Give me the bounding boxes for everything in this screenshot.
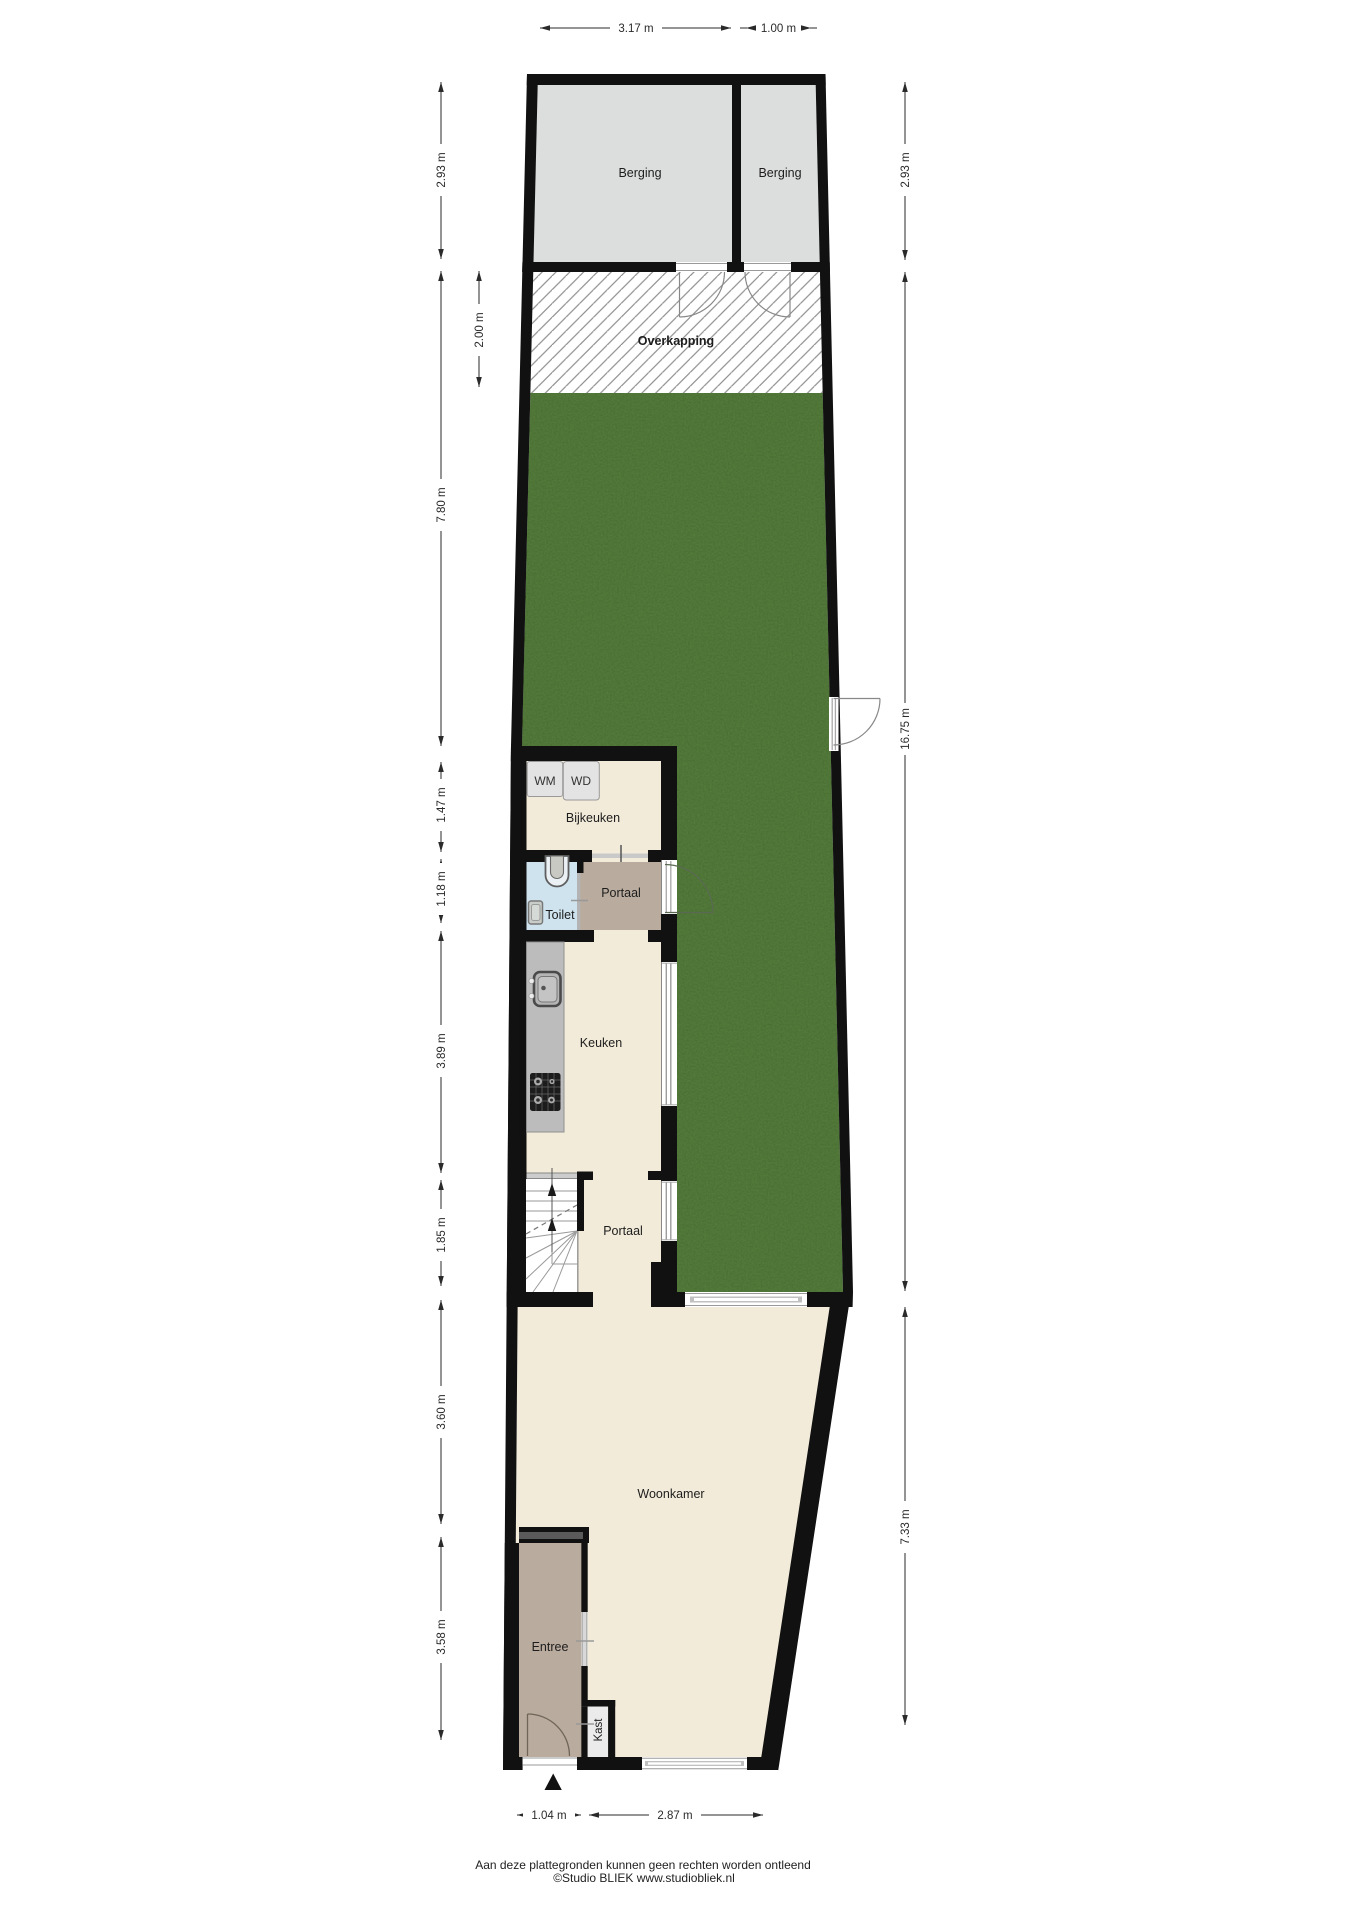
svg-text:Keuken: Keuken bbox=[580, 1036, 622, 1050]
svg-text:1.85 m: 1.85 m bbox=[436, 1217, 448, 1252]
svg-text:2.93 m: 2.93 m bbox=[900, 152, 912, 187]
svg-text:7.80 m: 7.80 m bbox=[436, 487, 448, 522]
svg-text:7.33 m: 7.33 m bbox=[900, 1509, 912, 1544]
svg-text:3.89 m: 3.89 m bbox=[436, 1033, 448, 1068]
svg-text:Overkapping: Overkapping bbox=[638, 334, 714, 348]
svg-text:1.04 m: 1.04 m bbox=[531, 1810, 566, 1822]
svg-text:Portaal: Portaal bbox=[603, 1224, 643, 1238]
svg-text:2.00 m: 2.00 m bbox=[474, 312, 486, 347]
svg-text:©Studio BLIEK www.studiobliek.: ©Studio BLIEK www.studiobliek.nl bbox=[553, 1871, 735, 1885]
svg-text:Berging: Berging bbox=[618, 166, 661, 180]
svg-text:1.00 m: 1.00 m bbox=[761, 23, 796, 35]
svg-text:WD: WD bbox=[571, 774, 591, 788]
svg-text:Entree: Entree bbox=[532, 1640, 569, 1654]
svg-text:WM: WM bbox=[534, 774, 555, 788]
svg-text:Bijkeuken: Bijkeuken bbox=[566, 811, 620, 825]
svg-text:3.60 m: 3.60 m bbox=[436, 1394, 448, 1429]
svg-text:Berging: Berging bbox=[758, 166, 801, 180]
svg-text:2.87 m: 2.87 m bbox=[657, 1810, 692, 1822]
svg-text:Portaal: Portaal bbox=[601, 886, 641, 900]
svg-text:1.18 m: 1.18 m bbox=[436, 871, 448, 906]
svg-text:Kast: Kast bbox=[593, 1718, 605, 1742]
svg-text:2.93 m: 2.93 m bbox=[436, 152, 448, 187]
svg-text:16.75 m: 16.75 m bbox=[900, 708, 912, 750]
svg-text:1.47 m: 1.47 m bbox=[436, 787, 448, 822]
svg-text:3.58 m: 3.58 m bbox=[436, 1619, 448, 1654]
svg-text:Woonkamer: Woonkamer bbox=[637, 1487, 704, 1501]
svg-text:Toilet: Toilet bbox=[545, 908, 575, 922]
svg-text:Aan deze plattegronden kunnen: Aan deze plattegronden kunnen geen recht… bbox=[475, 1858, 811, 1872]
svg-text:3.17 m: 3.17 m bbox=[618, 23, 653, 35]
